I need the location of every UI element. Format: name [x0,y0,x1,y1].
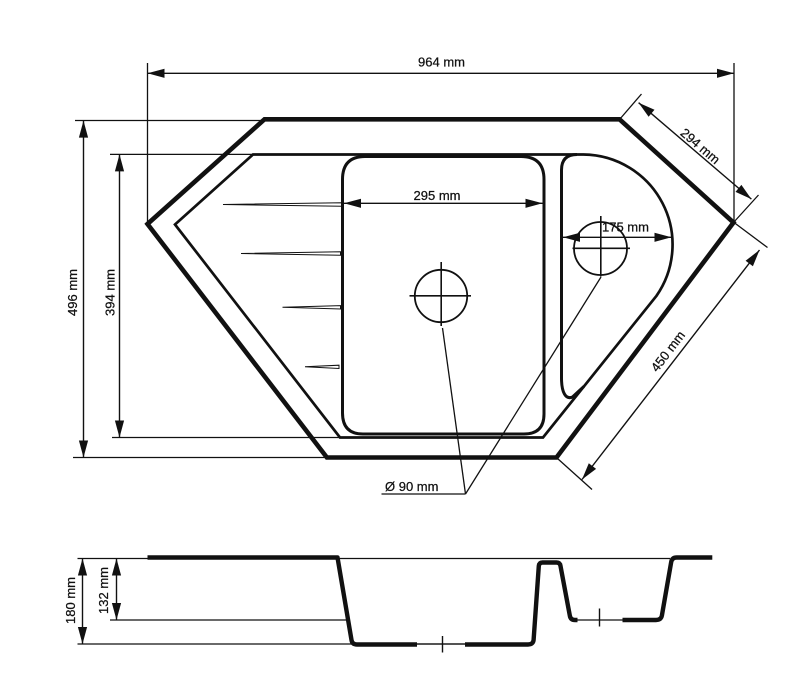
svg-text:132 mm: 132 mm [96,567,111,614]
svg-text:295 mm: 295 mm [414,188,461,203]
svg-text:180 mm: 180 mm [63,577,78,624]
svg-text:394 mm: 394 mm [103,269,118,316]
svg-text:Ø 90 mm: Ø 90 mm [385,479,438,494]
svg-text:175 mm: 175 mm [602,220,649,235]
svg-text:496 mm: 496 mm [65,269,80,316]
svg-text:964 mm: 964 mm [418,55,465,70]
